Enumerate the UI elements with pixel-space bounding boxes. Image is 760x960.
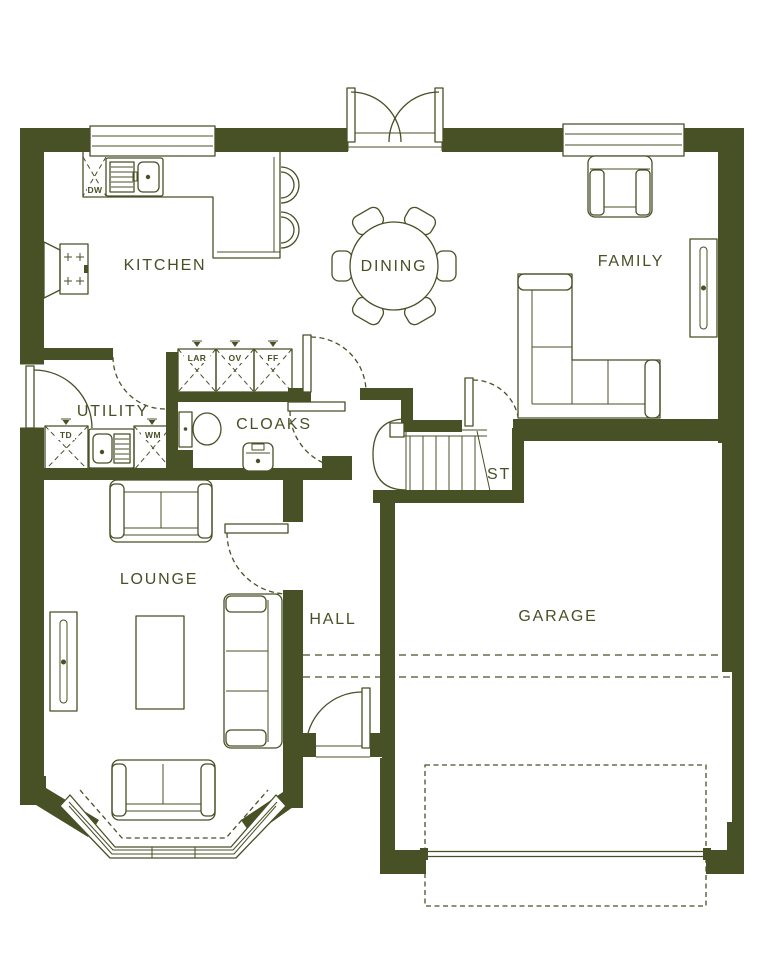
family-radiator: [690, 239, 717, 337]
basin: [243, 443, 273, 471]
utility-sink: [89, 429, 134, 468]
family-window: [563, 124, 684, 156]
armchair: [588, 156, 652, 217]
room-label-stairs: ST: [487, 466, 511, 483]
larder-label: LAR: [188, 353, 207, 363]
room-label-cloaks: CLOAKS: [236, 416, 312, 433]
windows: [90, 124, 684, 156]
room-label-hall: HALL: [309, 611, 356, 628]
family-room-door: [465, 378, 519, 426]
front-door: [303, 688, 383, 758]
garage-door-dashed-zone: [425, 765, 706, 906]
room-label-lounge: LOUNGE: [120, 571, 198, 588]
lounge-sofa-right: [224, 594, 282, 748]
oven-label: OV: [228, 353, 241, 363]
staircase: [373, 419, 490, 491]
floor-plan: LAR OV FF DW TD WM: [0, 0, 760, 960]
dishwasher-label: DW: [88, 185, 104, 195]
room-label-dining: DINING: [361, 258, 428, 275]
lounge-sofa-top: [110, 480, 212, 542]
family-furniture: [518, 156, 717, 418]
utility-kitchen-doorway: [113, 357, 165, 409]
hob: [44, 242, 88, 298]
kitchen-tall-units: LAR OV FF: [178, 341, 292, 392]
room-label-family: FAMILY: [598, 253, 665, 270]
kitchen-window: [90, 126, 215, 156]
french-door-opening: [348, 129, 442, 151]
lounge-door: [225, 524, 288, 594]
breakfast-bar-stools: [281, 167, 299, 248]
dining-hall-door: [303, 335, 366, 392]
newel-post: [390, 423, 404, 437]
lounge-radiator: [50, 612, 77, 711]
washing-machine-label: WM: [145, 430, 161, 440]
utility-fittings: TD WM: [45, 419, 172, 470]
kitchen-sink: [106, 158, 163, 196]
room-label-utility: UTILITY: [77, 403, 149, 420]
room-label-garage: GARAGE: [518, 608, 597, 625]
bay-sofa: [112, 760, 215, 820]
room-label-kitchen: KITCHEN: [124, 257, 207, 274]
floor-plan-drawing: LAR OV FF DW TD WM: [0, 0, 760, 960]
floor-over-dashed-lines: [303, 655, 733, 677]
garage-door: [425, 852, 706, 857]
coffee-table: [136, 616, 184, 709]
wc: [179, 412, 221, 447]
fridge-freezer-label: FF: [267, 353, 278, 363]
tumble-dryer-label: TD: [60, 430, 72, 440]
corner-sofa: [518, 274, 660, 418]
garage-details: [420, 765, 711, 906]
